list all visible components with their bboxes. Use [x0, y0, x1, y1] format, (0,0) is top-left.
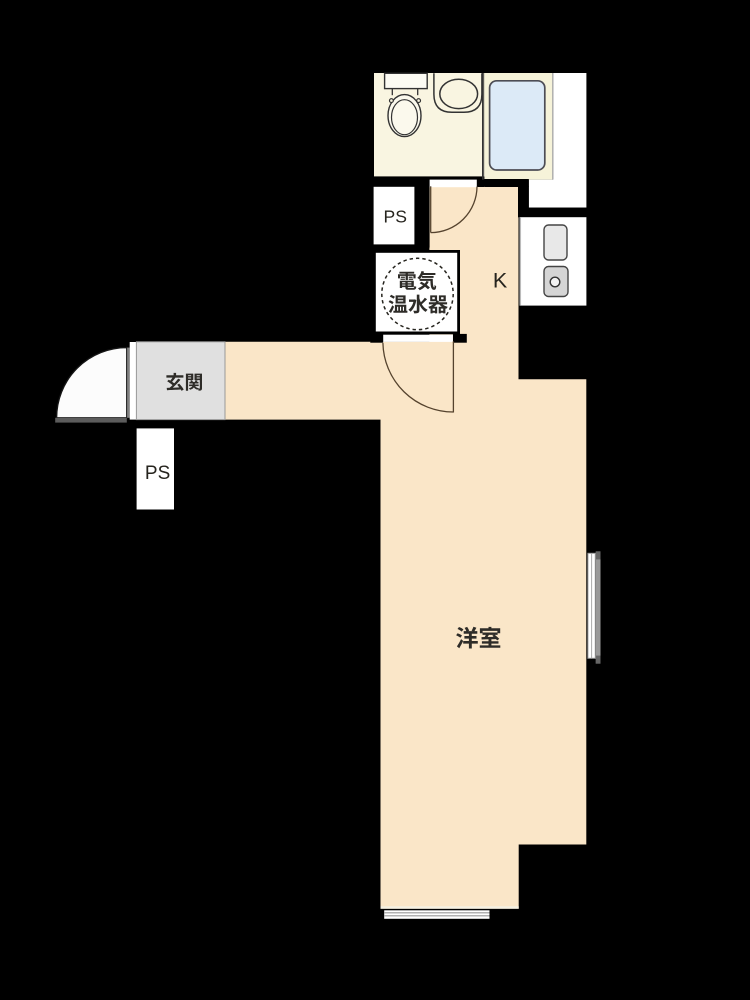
svg-text:PS: PS — [383, 207, 406, 227]
svg-text:PS: PS — [145, 463, 170, 484]
svg-text:K: K — [493, 269, 508, 293]
